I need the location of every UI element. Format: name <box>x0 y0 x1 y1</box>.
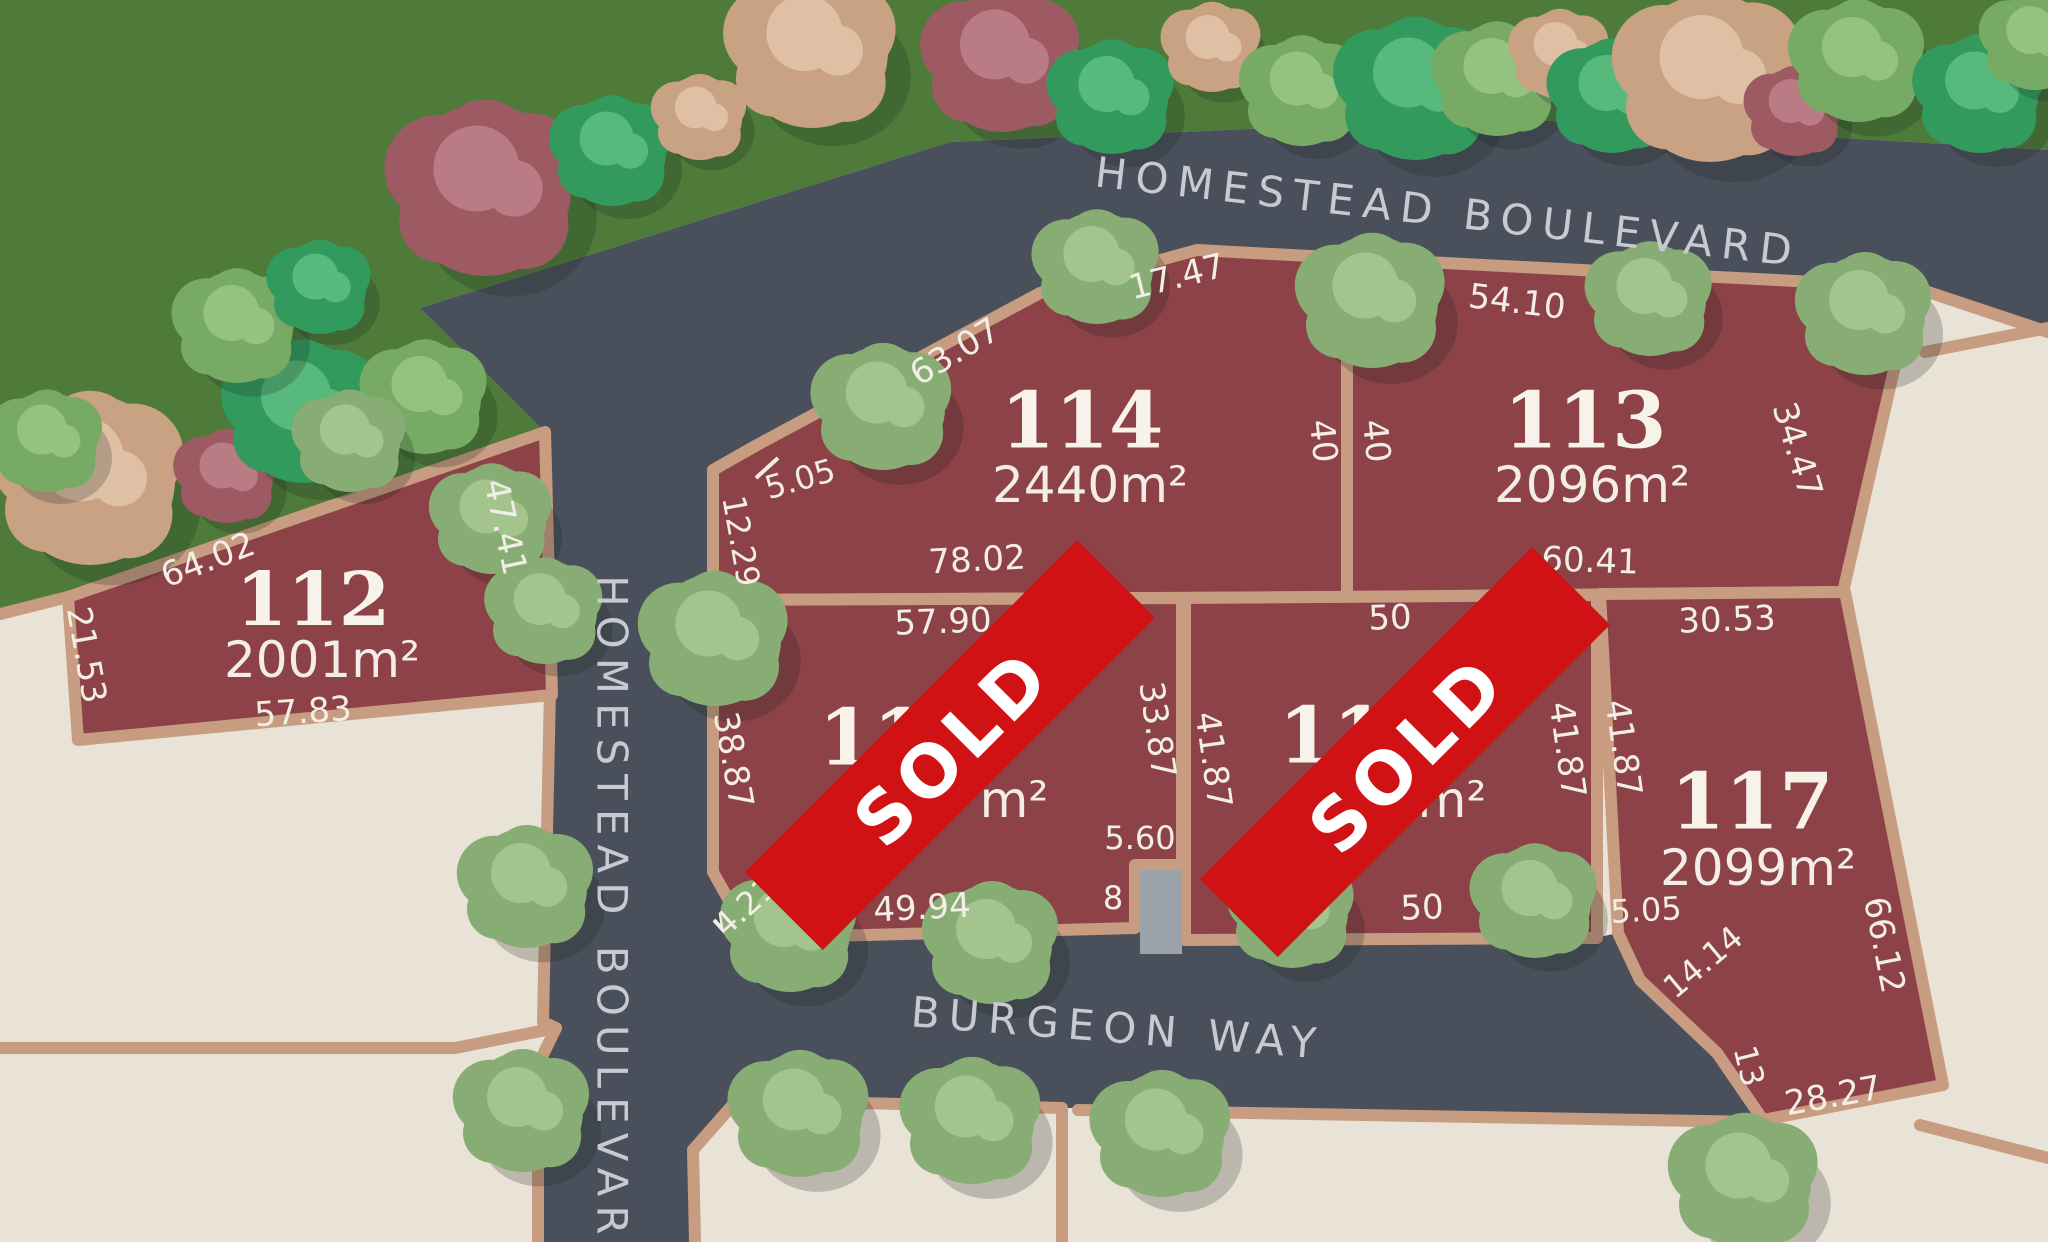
tree-highlight <box>613 133 649 169</box>
lot-number: 117 <box>1671 757 1834 848</box>
tree <box>899 1057 1052 1199</box>
tree <box>1089 1070 1242 1212</box>
tree-highlight <box>426 378 463 415</box>
dimension-label: 50 <box>1368 597 1413 638</box>
tree-highlight <box>973 1100 1014 1141</box>
dimension-label: 49.94 <box>872 885 971 930</box>
lot-area: 2440m² <box>992 456 1188 514</box>
street-label-homestead-boulevard: HOMESTEAD BOULEVARD <box>588 575 637 1242</box>
tree-highlight <box>1212 33 1241 62</box>
dimension-label: 8 <box>1103 879 1123 917</box>
lot-area: 2099m² <box>1660 839 1856 897</box>
tree-highlight <box>1859 41 1899 81</box>
parcel-border-line <box>1925 328 2048 352</box>
tree-highlight <box>546 594 580 628</box>
shared-driveway <box>1140 870 1182 954</box>
tree-highlight <box>1113 78 1150 115</box>
parcel-border-line <box>1920 1125 2048 1158</box>
tree <box>727 1050 880 1192</box>
tree-highlight <box>1866 294 1906 334</box>
dimension-label: 40 <box>1301 417 1345 464</box>
dimension-label: 57.90 <box>894 600 993 643</box>
tree <box>453 1049 601 1186</box>
dimension-label: 5.60 <box>1104 819 1175 857</box>
lot-area: 2096m² <box>1494 456 1690 514</box>
tree-highlight <box>351 425 384 458</box>
dimension-label: 40 <box>1354 417 1398 464</box>
tree-highlight <box>993 923 1033 963</box>
parcel-border-line <box>0 1028 556 1048</box>
estate-map: 64.0221.5357.8347.4163.0717.475.0512.297… <box>0 0 2048 1242</box>
dimension-label: 50 <box>1400 887 1445 928</box>
tree-highlight <box>524 1091 564 1131</box>
tree-highlight <box>1373 279 1417 323</box>
tree-highlight <box>1651 280 1688 317</box>
tree-highlight <box>1303 73 1339 109</box>
lot-number: 113 <box>1504 376 1667 467</box>
lot-area: 2001m² <box>224 631 420 689</box>
dimension-label: 78.02 <box>927 537 1026 582</box>
tree-highlight <box>716 617 760 661</box>
tree-highlight <box>884 386 925 427</box>
tree-highlight <box>238 307 275 344</box>
tree-highlight <box>528 867 568 907</box>
tree-highlight <box>813 25 863 75</box>
tree-highlight <box>1163 1113 1204 1154</box>
tree-highlight <box>801 1093 842 1134</box>
tree-highlight <box>1746 1159 1790 1203</box>
tree <box>457 825 605 962</box>
parcel-border-line <box>693 1150 695 1242</box>
lot-number: 114 <box>1001 376 1164 467</box>
tree-highlight <box>1003 38 1049 84</box>
tree-highlight <box>48 425 81 458</box>
tree <box>1668 1113 1831 1242</box>
tree-highlight <box>486 160 543 217</box>
tree-highlight <box>700 103 728 131</box>
tree-highlight <box>320 272 350 302</box>
tree-highlight <box>1536 882 1573 919</box>
dimension-label: 30.53 <box>1678 598 1777 641</box>
dimension-label: 57.83 <box>253 689 353 736</box>
estate-map-canvas: 64.0221.5357.8347.4163.0717.475.0512.297… <box>0 0 2048 1242</box>
